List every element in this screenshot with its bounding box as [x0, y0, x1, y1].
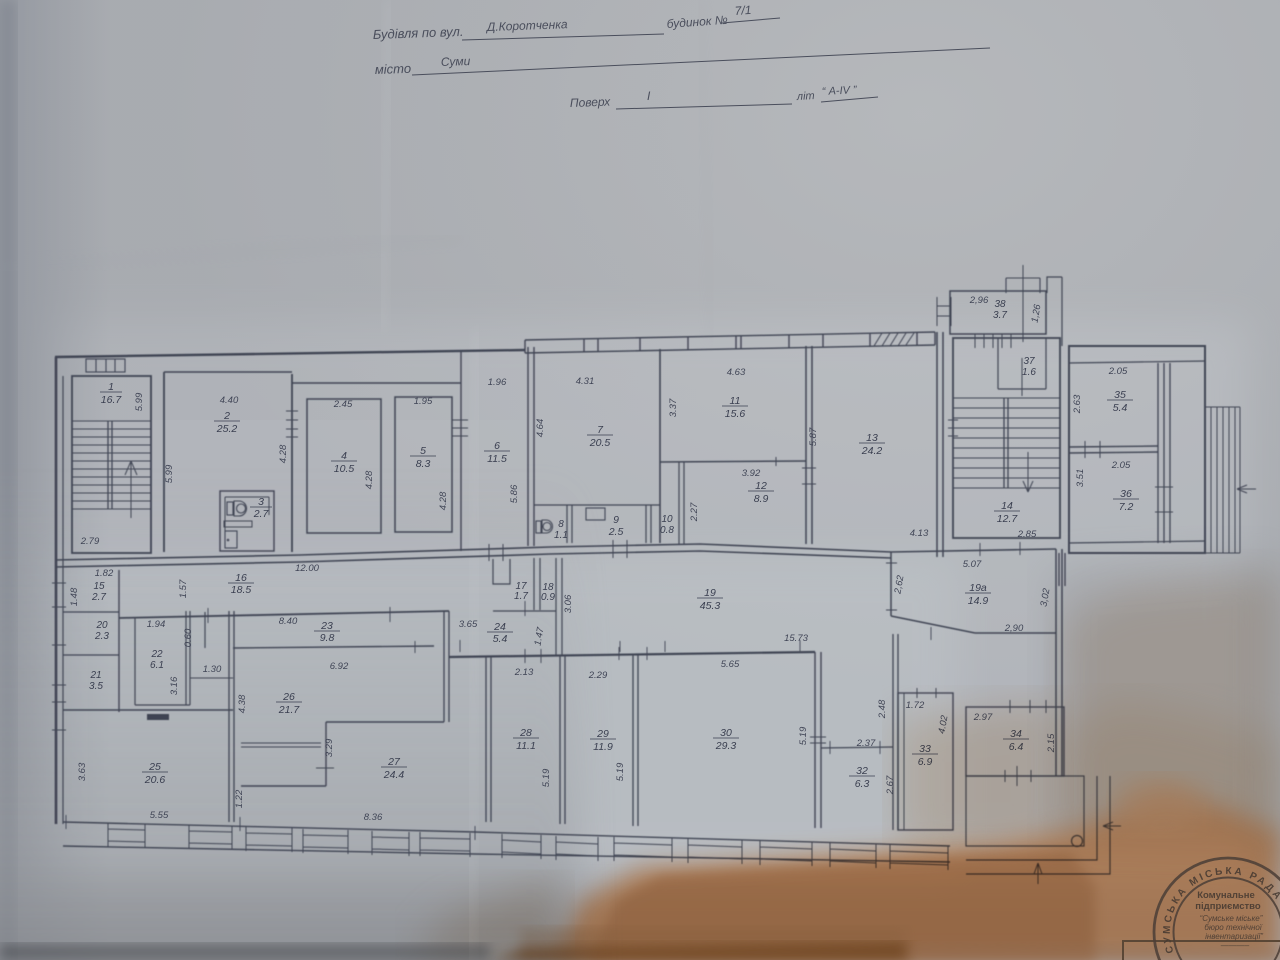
svg-text:6.92: 6.92	[330, 661, 349, 672]
svg-text:1.30: 1.30	[203, 664, 222, 675]
svg-text:1.94: 1.94	[147, 619, 166, 630]
svg-text:4.28: 4.28	[438, 491, 449, 510]
svg-text:Будівля по вул.: Будівля по вул.	[373, 24, 464, 42]
svg-text:2.37: 2.37	[856, 738, 876, 749]
svg-text:2.27: 2.27	[689, 502, 700, 522]
svg-text:14: 14	[1001, 500, 1013, 512]
svg-text:25: 25	[148, 761, 161, 773]
svg-text:3.37: 3.37	[668, 398, 679, 417]
svg-text:1.1: 1.1	[554, 530, 568, 541]
svg-text:5.65: 5.65	[721, 659, 740, 670]
svg-text:3.65: 3.65	[459, 619, 478, 630]
svg-text:18.5: 18.5	[231, 584, 252, 596]
svg-text:15.73: 15.73	[784, 633, 808, 644]
svg-text:2,90: 2,90	[1004, 623, 1024, 634]
svg-text:11.5: 11.5	[487, 453, 507, 465]
svg-text:3.63: 3.63	[77, 762, 88, 781]
svg-text:5.55: 5.55	[150, 810, 169, 821]
svg-text:інвентаризації”: інвентаризації”	[1205, 932, 1263, 941]
svg-text:1.7: 1.7	[514, 591, 528, 602]
svg-text:2.48: 2.48	[877, 699, 888, 719]
svg-text:8.36: 8.36	[364, 812, 383, 823]
svg-text:5.99: 5.99	[164, 464, 175, 483]
svg-text:11.1: 11.1	[516, 740, 536, 752]
svg-text:Комунальне: Комунальне	[1197, 890, 1255, 901]
svg-text:12: 12	[755, 480, 767, 492]
svg-text:5.99: 5.99	[134, 392, 145, 411]
svg-text:4: 4	[341, 450, 347, 462]
svg-text:0.60: 0.60	[183, 628, 194, 647]
svg-text:місто: місто	[375, 61, 412, 77]
svg-text:3.51: 3.51	[1075, 469, 1086, 488]
svg-text:4.64: 4.64	[535, 419, 546, 438]
svg-text:4.31: 4.31	[576, 376, 595, 387]
svg-text:11.9: 11.9	[593, 741, 613, 753]
svg-text:19: 19	[704, 587, 716, 599]
svg-text:6: 6	[494, 440, 500, 452]
svg-text:0.9: 0.9	[541, 592, 555, 603]
svg-text:4.28: 4.28	[364, 470, 375, 489]
svg-text:1.72: 1.72	[906, 700, 925, 711]
svg-text:5.87: 5.87	[808, 427, 819, 446]
svg-text:28: 28	[519, 727, 532, 739]
svg-text:4.63: 4.63	[727, 367, 746, 378]
svg-text:11: 11	[730, 395, 741, 407]
svg-text:23: 23	[320, 620, 333, 632]
svg-text:———–: ———–	[1221, 941, 1250, 950]
svg-text:4.13: 4.13	[910, 528, 929, 539]
svg-text:8.9: 8.9	[754, 493, 769, 505]
svg-text:10.5: 10.5	[334, 463, 355, 475]
svg-text:0.8: 0.8	[660, 525, 674, 536]
svg-text:36: 36	[1120, 488, 1132, 500]
svg-text:2,96: 2,96	[969, 295, 989, 306]
svg-text:37: 37	[1023, 356, 1035, 367]
svg-text:1.57: 1.57	[178, 579, 189, 598]
svg-text:22: 22	[150, 649, 163, 660]
svg-text:2.79: 2.79	[80, 536, 100, 547]
svg-text:24.4: 24.4	[383, 769, 405, 781]
svg-text:5.07: 5.07	[963, 559, 982, 570]
svg-text:5: 5	[420, 445, 426, 457]
svg-text:20.5: 20.5	[589, 437, 611, 449]
svg-text:6.1: 6.1	[150, 660, 164, 671]
svg-text:14.9: 14.9	[968, 595, 989, 607]
svg-text:29.3: 29.3	[715, 740, 737, 752]
svg-text:10: 10	[661, 514, 673, 525]
svg-text:13: 13	[866, 432, 878, 444]
svg-text:2.85: 2.85	[1017, 529, 1037, 540]
svg-text:4.38: 4.38	[237, 694, 248, 713]
svg-text:25.2: 25.2	[216, 423, 238, 435]
svg-text:32: 32	[856, 765, 868, 777]
svg-text:7.2: 7.2	[1119, 501, 1134, 513]
svg-text:30: 30	[720, 727, 732, 739]
svg-text:5.4: 5.4	[1113, 402, 1128, 414]
svg-text:8.3: 8.3	[416, 458, 431, 470]
svg-text:2.29: 2.29	[588, 670, 608, 681]
svg-text:3.7: 3.7	[993, 310, 1007, 321]
svg-text:8.40: 8.40	[279, 616, 298, 627]
svg-text:26: 26	[282, 691, 295, 703]
svg-text:5.19: 5.19	[541, 768, 552, 787]
svg-text:16.7: 16.7	[101, 394, 123, 406]
svg-text:Поверх: Поверх	[570, 95, 612, 110]
svg-text:бюро технічної: бюро технічної	[1204, 923, 1263, 932]
svg-text:19а: 19а	[969, 582, 987, 594]
svg-text:3.92: 3.92	[742, 468, 761, 479]
svg-text:4.40: 4.40	[220, 395, 239, 406]
svg-text:“ А-ІV ”: “ А-ІV ”	[822, 84, 859, 98]
svg-text:1.48: 1.48	[69, 587, 80, 606]
svg-text:1: 1	[108, 381, 114, 393]
svg-text:12.00: 12.00	[295, 563, 319, 574]
svg-text:2.05: 2.05	[1108, 366, 1128, 377]
svg-text:29: 29	[596, 728, 609, 740]
svg-text:2.45: 2.45	[333, 399, 353, 410]
svg-text:2.05: 2.05	[1111, 460, 1131, 471]
svg-text:1.96: 1.96	[488, 377, 507, 388]
svg-text:9: 9	[613, 514, 619, 526]
svg-text:“Сумське міське”: “Сумське міське”	[1200, 914, 1263, 923]
svg-text:2.13: 2.13	[514, 667, 534, 678]
svg-text:20: 20	[95, 620, 108, 631]
svg-text:24.2: 24.2	[861, 445, 883, 457]
svg-text:21.7: 21.7	[278, 704, 301, 716]
svg-text:35: 35	[1114, 389, 1126, 401]
svg-text:2: 2	[223, 410, 230, 422]
svg-text:Суми: Суми	[441, 54, 471, 69]
svg-text:1.22: 1.22	[234, 789, 245, 808]
svg-text:3: 3	[258, 496, 264, 508]
svg-text:7/1: 7/1	[734, 3, 752, 18]
svg-text:15: 15	[93, 581, 105, 592]
svg-text:16: 16	[235, 572, 247, 584]
svg-text:24: 24	[493, 621, 506, 633]
svg-text:9.8: 9.8	[320, 632, 335, 644]
svg-text:2.67: 2.67	[885, 775, 896, 795]
svg-text:27: 27	[387, 756, 401, 768]
svg-text:38: 38	[994, 299, 1006, 310]
svg-text:3.16: 3.16	[169, 676, 180, 695]
svg-text:1.82: 1.82	[95, 568, 114, 579]
svg-text:2.7: 2.7	[91, 592, 106, 603]
svg-text:Д.Коротченка: Д.Коротченка	[485, 17, 568, 34]
svg-text:підприємство: підприємство	[1195, 901, 1261, 912]
svg-text:1.6: 1.6	[1022, 367, 1036, 378]
svg-text:8: 8	[558, 519, 564, 530]
svg-text:6.3: 6.3	[855, 778, 870, 790]
svg-text:4.28: 4.28	[278, 444, 289, 463]
svg-text:21: 21	[89, 670, 101, 681]
svg-text:5.86: 5.86	[509, 484, 520, 503]
svg-text:2.63: 2.63	[1072, 394, 1083, 414]
svg-text:літ: літ	[796, 90, 815, 103]
svg-text:5.19: 5.19	[798, 726, 809, 745]
svg-text:5.4: 5.4	[493, 633, 508, 645]
svg-text:3.5: 3.5	[89, 681, 103, 692]
svg-text:3.06: 3.06	[563, 594, 574, 613]
svg-text:5.19: 5.19	[615, 762, 626, 781]
svg-text:12.7: 12.7	[997, 513, 1019, 525]
svg-text:15.6: 15.6	[725, 408, 746, 420]
svg-text:1.95: 1.95	[414, 396, 433, 407]
svg-text:45.3: 45.3	[700, 600, 721, 612]
svg-text:2.7: 2.7	[253, 508, 270, 520]
svg-text:3.29: 3.29	[324, 738, 335, 757]
svg-text:2.5: 2.5	[608, 526, 624, 538]
svg-text:2.3: 2.3	[94, 631, 109, 642]
svg-text:20.6: 20.6	[144, 774, 166, 786]
